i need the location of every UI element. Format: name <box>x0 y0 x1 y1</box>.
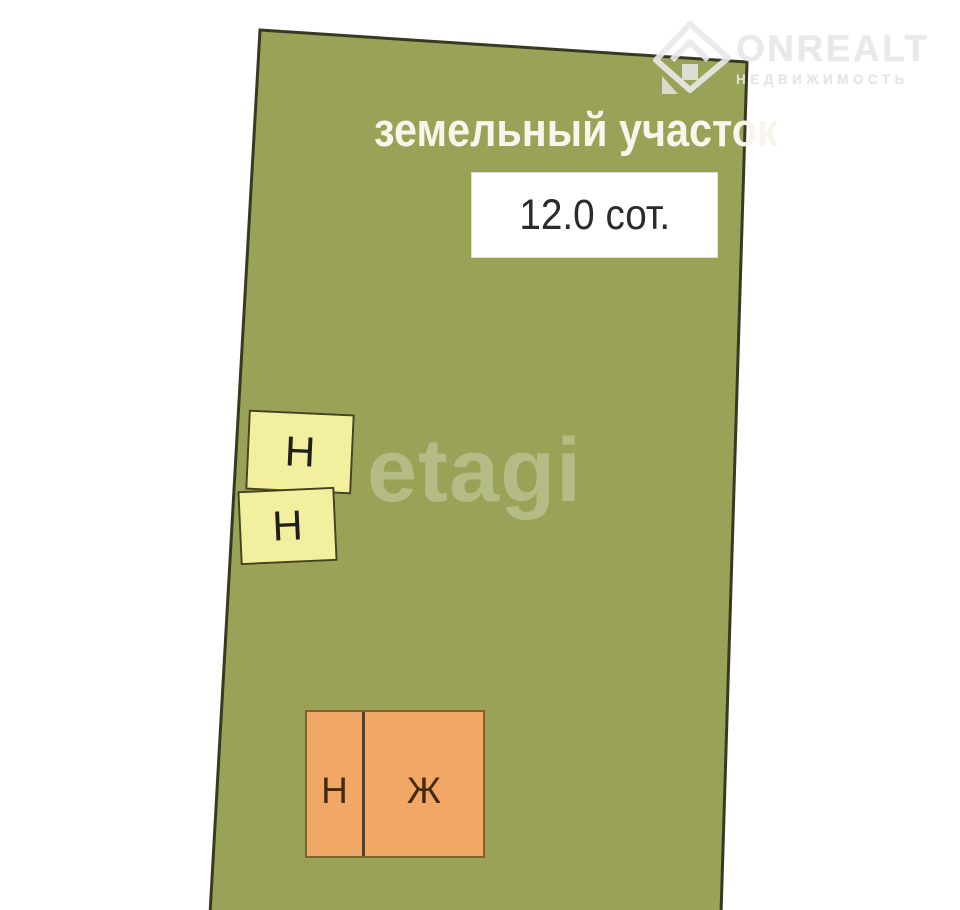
house-section-nonresidential-label: Н <box>321 756 348 812</box>
outbuilding-lower: Н <box>237 487 337 565</box>
etagi-watermark: etagi <box>367 426 582 516</box>
house-section-nonresidential: Н <box>307 712 365 856</box>
house-section-residential-label: Ж <box>407 756 441 812</box>
outbuilding-upper-label: Н <box>284 427 316 476</box>
area-value: 12.0 сот. <box>519 191 670 240</box>
brand-text-block: ONREALT НЕДВИЖИМОСТЬ <box>736 20 930 87</box>
land-plot-plan: etagi земельный участок 12.0 сот. Н Н Н … <box>0 0 960 910</box>
outbuilding-lower-label: Н <box>271 501 303 550</box>
outbuilding-upper: Н <box>245 410 355 495</box>
house-section-residential: Ж <box>365 712 483 856</box>
brand-tagline: НЕДВИЖИМОСТЬ <box>736 72 930 87</box>
area-label-box: 12.0 сот. <box>471 172 718 258</box>
main-house: Н Ж <box>305 710 485 858</box>
parcel-title: земельный участок <box>374 104 778 156</box>
brand-name: ONREALT <box>736 30 930 67</box>
house-magnifier-icon <box>648 20 732 96</box>
onrealt-logo: ONREALT НЕДВИЖИМОСТЬ <box>648 20 930 96</box>
